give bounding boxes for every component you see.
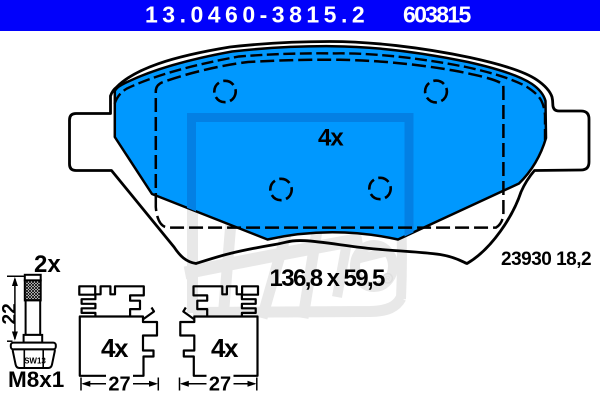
svg-text:23930 18,2: 23930 18,2 (501, 249, 591, 270)
svg-text:4x: 4x (101, 333, 129, 363)
svg-text:4x: 4x (318, 125, 344, 152)
svg-text:R: R (385, 276, 390, 283)
svg-text:136,8 x 59,5: 136,8 x 59,5 (270, 265, 386, 292)
svg-text:SW13: SW13 (24, 357, 46, 366)
svg-text:13.0460-3815.2: 13.0460-3815.2 (145, 2, 369, 28)
svg-text:603815: 603815 (403, 2, 471, 28)
svg-text:M8x1: M8x1 (8, 367, 64, 392)
svg-text:27: 27 (108, 374, 130, 396)
svg-text:27: 27 (209, 374, 231, 396)
svg-text:4x: 4x (211, 333, 239, 363)
svg-text:22: 22 (0, 303, 21, 324)
